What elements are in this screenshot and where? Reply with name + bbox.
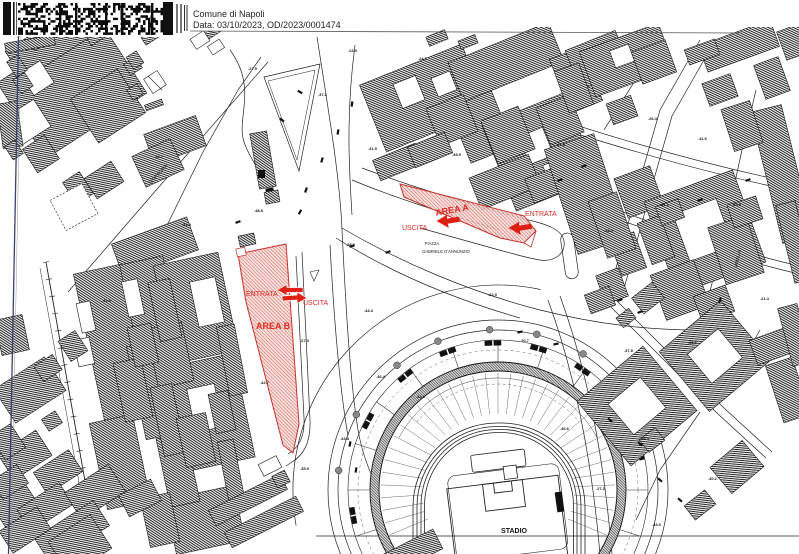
svg-text:PIAZZA: PIAZZA (425, 241, 440, 246)
svg-text:.37.2: .37.2 (318, 92, 328, 97)
svg-text:.22.9: .22.9 (488, 292, 498, 297)
svg-text:Data: 03/10/2023, OD/2023/0001: Data: 03/10/2023, OD/2023/0001474 (193, 20, 341, 30)
svg-text:ENTRATA: ENTRATA (525, 211, 557, 218)
svg-text:.27.3: .27.3 (300, 338, 310, 343)
svg-text:.47.8: .47.8 (556, 142, 566, 147)
svg-text:.32.0: .32.0 (604, 228, 614, 233)
svg-text:.21.4: .21.4 (760, 296, 770, 301)
svg-text:.42.7: .42.7 (260, 380, 270, 385)
svg-text:.32.9: .32.9 (182, 222, 192, 227)
svg-text:.43.6: .43.6 (652, 522, 662, 527)
svg-text:.44.0: .44.0 (416, 394, 426, 399)
svg-text:.38.5: .38.5 (640, 436, 650, 441)
svg-text:.20.7: .20.7 (520, 338, 530, 343)
svg-text:.35.6: .35.6 (688, 340, 698, 345)
svg-text:USCITA: USCITA (402, 225, 427, 232)
svg-text:.41.1: .41.1 (660, 202, 670, 207)
svg-text:.40.2: .40.2 (708, 476, 718, 481)
svg-text:.41.6: .41.6 (698, 136, 708, 141)
svg-text:.48.5: .48.5 (254, 208, 264, 213)
svg-text:.27.2: .27.2 (596, 486, 606, 491)
svg-text:.46.6: .46.6 (560, 426, 570, 431)
svg-text:.24.7: .24.7 (418, 56, 428, 61)
svg-text:.23.0: .23.0 (348, 48, 358, 53)
svg-text:.35.9: .35.9 (300, 466, 310, 471)
svg-text:.44.4: .44.4 (364, 308, 374, 313)
svg-text:.34.2: .34.2 (154, 154, 164, 159)
svg-text:ENTRATA: ENTRATA (246, 291, 278, 298)
svg-text:GABRIELE D'ANNUNZIO: GABRIELE D'ANNUNZIO (422, 249, 471, 254)
svg-text:.37.8: .37.8 (624, 348, 634, 353)
svg-text:.46.4: .46.4 (376, 374, 386, 379)
svg-text:.35.9: .35.9 (452, 152, 462, 157)
svg-text:.26.4: .26.4 (648, 116, 658, 121)
svg-text:Comune di Napoli: Comune di Napoli (193, 9, 265, 19)
svg-text:.31.9: .31.9 (368, 146, 378, 151)
svg-text:.42.6: .42.6 (102, 298, 112, 303)
svg-text:AREA B: AREA B (256, 321, 291, 331)
svg-text:.27.9: .27.9 (248, 66, 258, 71)
svg-text:.33.8: .33.8 (340, 436, 350, 441)
svg-text:STADIO: STADIO (501, 528, 527, 535)
svg-text:.28.8: .28.8 (346, 242, 356, 247)
svg-text:.25.9: .25.9 (732, 202, 742, 207)
svg-text:USCITA: USCITA (303, 300, 328, 307)
